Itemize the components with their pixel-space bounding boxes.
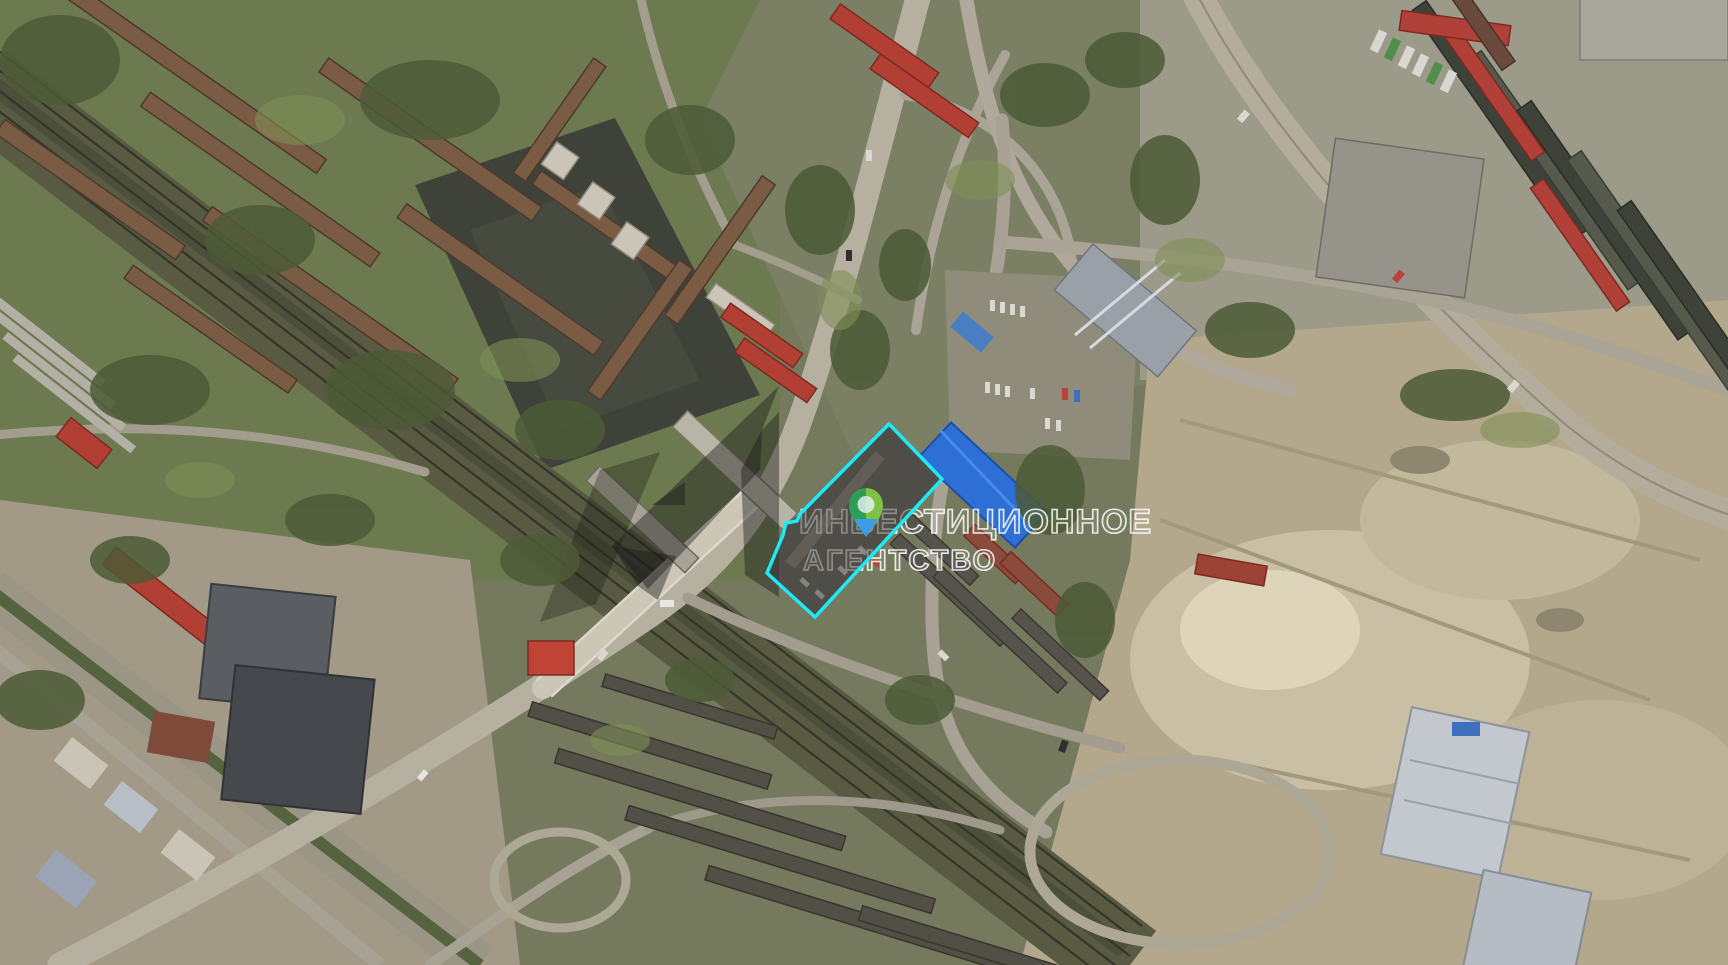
parcel-overlay — [0, 0, 1728, 965]
pin-hole — [858, 496, 875, 513]
satellite-map[interactable]: ИНВЕСТИЦИОННОЕ АГЕНТСТВО — [0, 0, 1728, 965]
